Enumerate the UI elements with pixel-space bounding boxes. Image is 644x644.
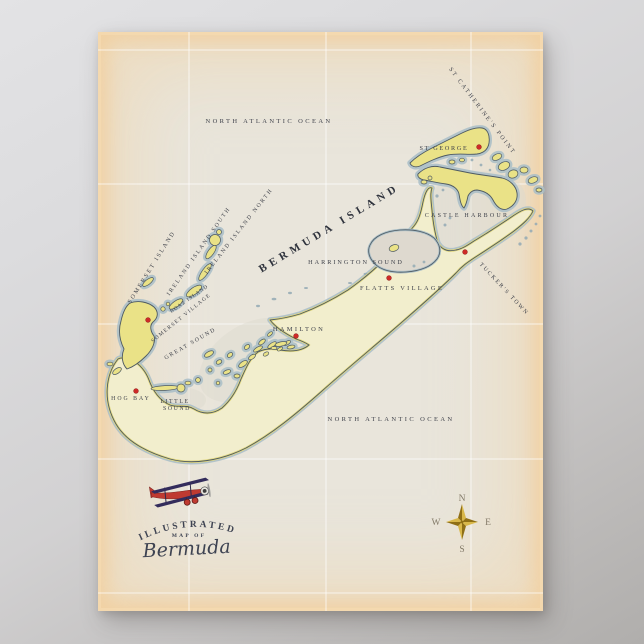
label-hamilton: HAMILTON bbox=[273, 326, 325, 333]
marker-tuckers-town bbox=[463, 250, 468, 255]
label-castle-harbour: CASTLE HARBOUR bbox=[425, 213, 509, 219]
marker-flatts-village bbox=[387, 276, 392, 281]
label-hog-bay: HOG BAY bbox=[111, 396, 151, 402]
label-little-sound-line2: SOUND bbox=[163, 406, 191, 412]
island-somerset bbox=[120, 302, 158, 369]
label-st-george: ST GEORGE bbox=[419, 145, 468, 152]
marker-st-george bbox=[477, 145, 482, 150]
poster-product-photo: NORTH ATLANTIC OCEAN NORTH ATLANTIC OCEA… bbox=[0, 0, 644, 644]
compass-rose: N E S W bbox=[432, 494, 492, 555]
poster-title-script: Bermuda bbox=[141, 536, 231, 563]
label-harrington-sound: HARRINGTON SOUND bbox=[308, 259, 404, 266]
label-flatts-village: FLATTS VILLAGE bbox=[360, 285, 444, 292]
label-ocean-bottom: NORTH ATLANTIC OCEAN bbox=[327, 416, 454, 423]
label-ocean-top: NORTH ATLANTIC OCEAN bbox=[205, 118, 332, 125]
bermuda-map: NORTH ATLANTIC OCEAN NORTH ATLANTIC OCEA… bbox=[0, 0, 644, 644]
marker-hog-bay bbox=[134, 389, 139, 394]
compass-letter-w: W bbox=[432, 518, 441, 528]
compass-letter-e: E bbox=[485, 518, 491, 528]
label-tuckers-town: TUCKER'S TOWN bbox=[478, 262, 530, 317]
marker-hamilton bbox=[294, 334, 299, 339]
compass-letter-n: N bbox=[459, 494, 466, 504]
poster-title: ILLUSTRATED MAP OF Bermuda bbox=[137, 520, 237, 562]
label-little-sound-line1: LITTLE bbox=[160, 399, 189, 405]
compass-letter-s: S bbox=[459, 545, 464, 555]
biplane-illustration bbox=[149, 477, 212, 511]
marker-somerset-village bbox=[146, 318, 151, 323]
lagoon-tint bbox=[154, 156, 537, 419]
